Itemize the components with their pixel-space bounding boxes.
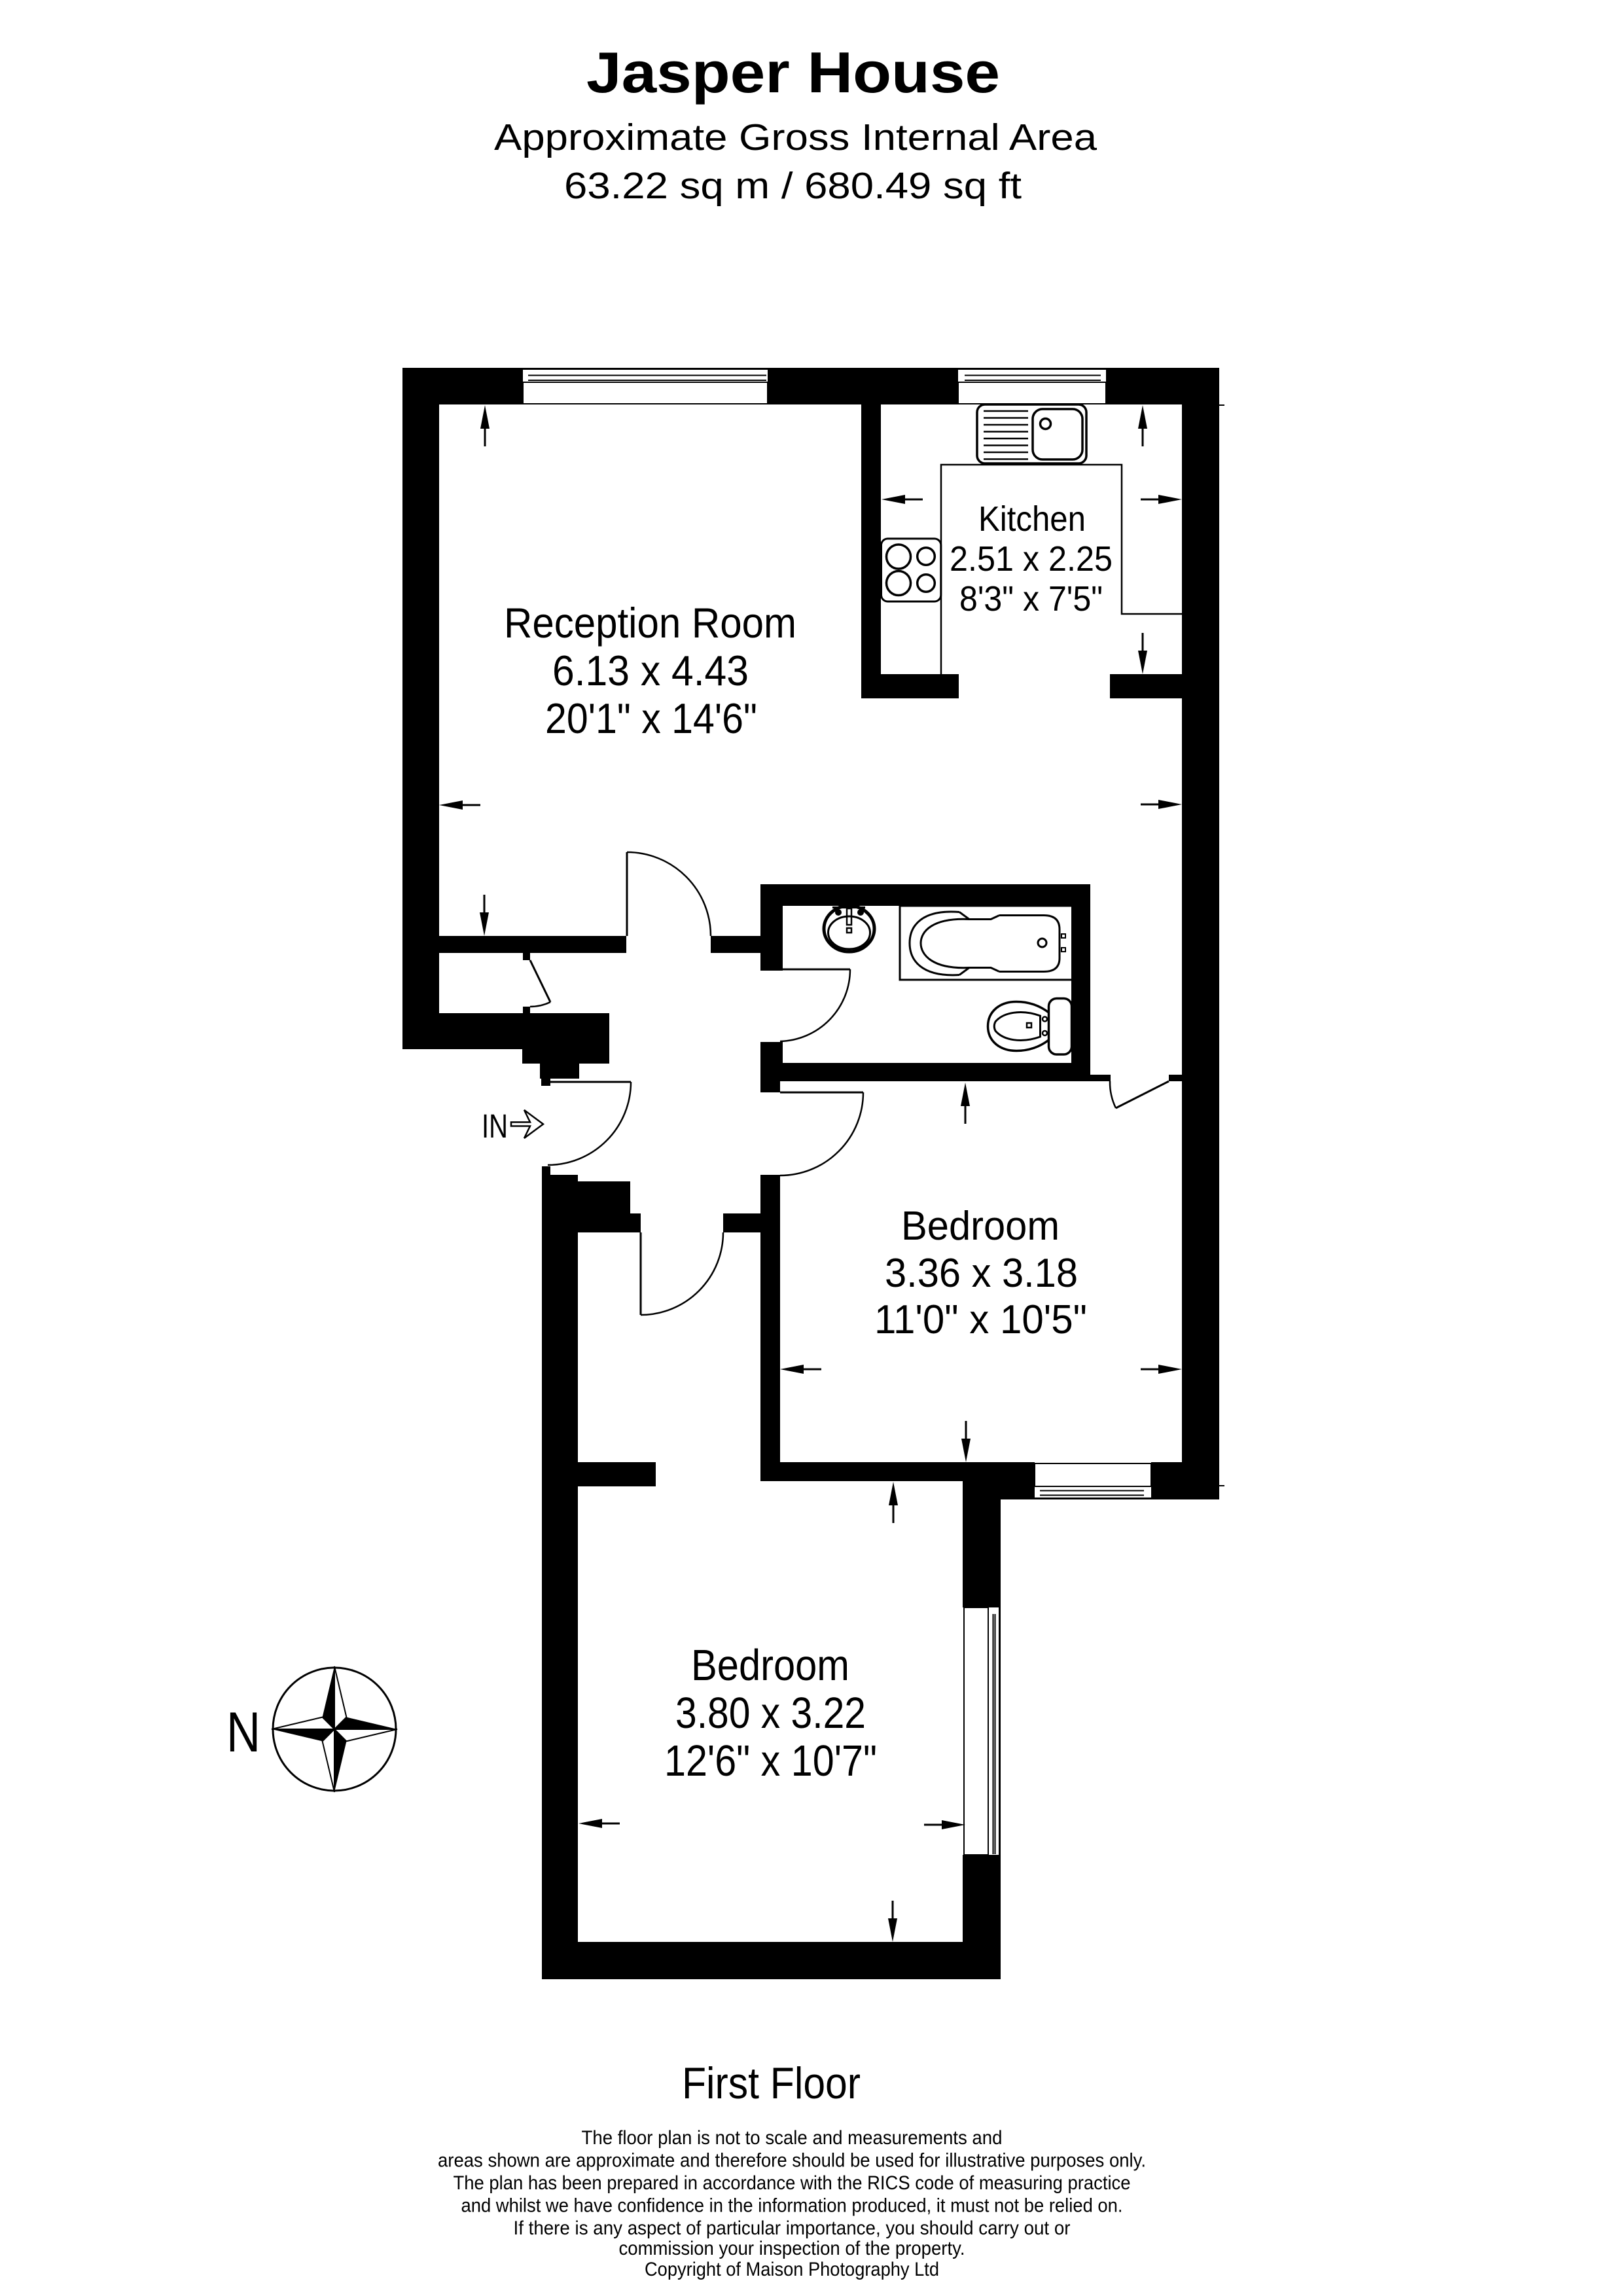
svg-text:and whilst we have confidence: and whilst we have confidence in the inf… [461, 2195, 1123, 2217]
svg-text:N: N [226, 1701, 260, 1764]
svg-text:Reception Room: Reception Room [504, 599, 796, 647]
svg-text:8'3" x 7'5": 8'3" x 7'5" [959, 579, 1103, 619]
svg-text:2.51 x 2.25: 2.51 x 2.25 [950, 539, 1113, 579]
svg-text:Kitchen: Kitchen [978, 499, 1086, 539]
svg-text:The plan has been prepared in: The plan has been prepared in accordance… [454, 2172, 1131, 2194]
svg-text:IN: IN [482, 1107, 508, 1145]
svg-text:If there is any aspect of part: If there is any aspect of particular imp… [514, 2217, 1071, 2239]
svg-text:commission your inspection of: commission your inspection of the proper… [619, 2238, 965, 2259]
svg-text:12'6" x 10'7": 12'6" x 10'7" [664, 1736, 877, 1785]
svg-text:20'1" x 14'6": 20'1" x 14'6" [545, 694, 757, 742]
svg-text:Copyright of Maison Photograph: Copyright of Maison Photography Ltd [645, 2259, 939, 2280]
svg-text:areas shown are approximate an: areas shown are approximate and therefor… [438, 2150, 1146, 2172]
svg-text:Bedroom: Bedroom [901, 1204, 1060, 1249]
svg-text:63.22 sq m / 680.49 sq ft: 63.22 sq m / 680.49 sq ft [564, 165, 1022, 207]
svg-text:First Floor: First Floor [682, 2058, 861, 2108]
svg-text:Bedroom: Bedroom [691, 1641, 849, 1690]
svg-text:3.80 x 3.22: 3.80 x 3.22 [675, 1689, 866, 1738]
svg-text:11'0" x 10'5": 11'0" x 10'5" [874, 1297, 1087, 1342]
svg-text:6.13 x 4.43: 6.13 x 4.43 [552, 647, 749, 694]
svg-text:The floor plan is not to scale: The floor plan is not to scale and measu… [582, 2127, 1003, 2149]
svg-text:Jasper House: Jasper House [586, 40, 1000, 105]
svg-text:Approximate Gross Internal Are: Approximate Gross Internal Area [494, 117, 1097, 158]
svg-text:3.36 x 3.18: 3.36 x 3.18 [885, 1251, 1078, 1296]
